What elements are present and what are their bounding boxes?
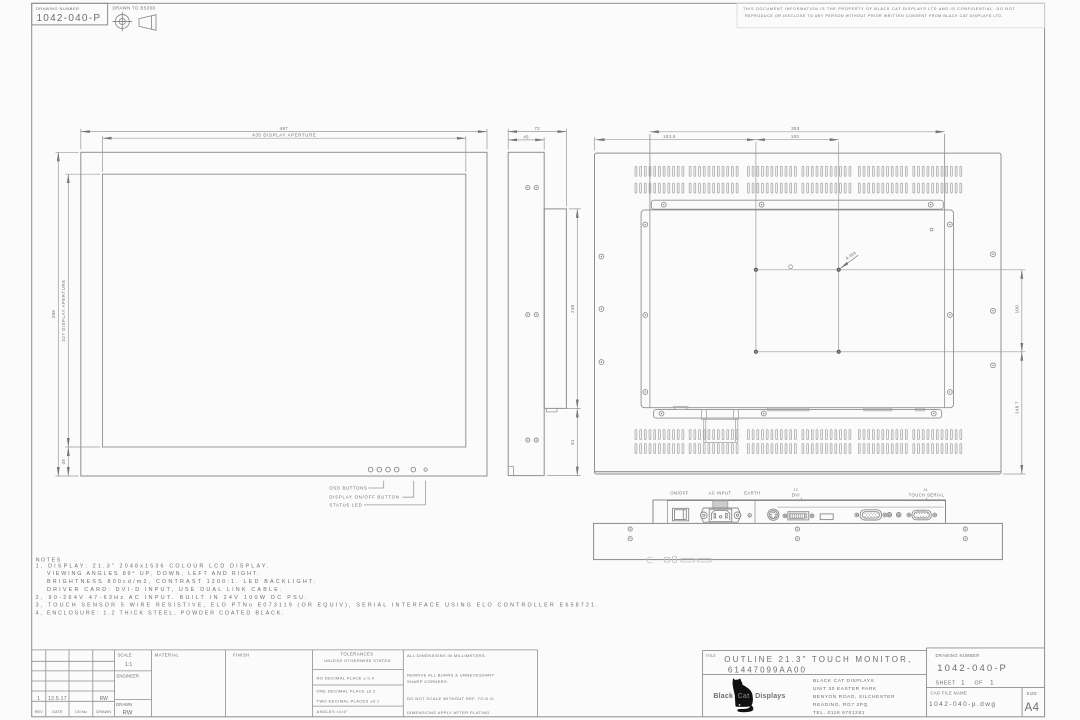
- svg-text:72: 72: [535, 126, 541, 131]
- svg-text:BRIGHTNESS 800cd/m2, CONTRAST: BRIGHTNESS 800cd/m2, CONTRAST 1200:1. LE…: [47, 579, 315, 585]
- svg-text:ENGINEER: ENGINEER: [117, 673, 139, 678]
- svg-text:SCALE: SCALE: [118, 652, 132, 657]
- svg-text:SIZE: SIZE: [1027, 691, 1038, 696]
- svg-text:DVI: DVI: [792, 493, 800, 498]
- svg-text:1: 1: [37, 696, 40, 702]
- svg-text:REMOVE ALL BURRS & UNNECESSARY: REMOVE ALL BURRS & UNNECESSARY: [407, 672, 495, 677]
- svg-text:DRAWN TO BS308: DRAWN TO BS308: [113, 6, 156, 11]
- svg-text:100: 100: [1015, 305, 1020, 314]
- svg-text:1042-040-p.dwg: 1042-040-p.dwg: [929, 701, 995, 708]
- svg-text:BENYON ROAD, SILCHESTER: BENYON ROAD, SILCHESTER: [813, 694, 895, 700]
- svg-text:388: 388: [51, 310, 56, 319]
- svg-text:UNIT 30 EASTER PARK: UNIT 30 EASTER PARK: [813, 686, 877, 692]
- svg-text:353: 353: [791, 126, 800, 131]
- svg-text:RW: RW: [100, 696, 109, 702]
- svg-text:DISPLAY ON/OFF BUTTON: DISPLAY ON/OFF BUTTON: [329, 495, 399, 500]
- svg-text:1: 1: [961, 680, 965, 687]
- svg-text:487: 487: [280, 126, 289, 131]
- svg-text:100: 100: [791, 134, 800, 139]
- svg-text:CN No: CN No: [75, 709, 87, 714]
- svg-text:ALL DIMENSIONS IN MILLIMETERS.: ALL DIMENSIONS IN MILLIMETERS.: [407, 653, 486, 658]
- svg-text:RW: RW: [123, 711, 133, 717]
- svg-text:SHEET: SHEET: [936, 680, 957, 686]
- svg-text:REV: REV: [35, 709, 43, 714]
- svg-text:OF: OF: [975, 680, 983, 686]
- svg-text:12.5.17: 12.5.17: [48, 696, 67, 702]
- svg-text:327 DISPLAY APERTURE: 327 DISPLAY APERTURE: [61, 280, 66, 342]
- svg-text:TITLE: TITLE: [706, 654, 717, 658]
- svg-text:248: 248: [570, 304, 575, 313]
- svg-text:UNLESS OTHERWISE STATED: UNLESS OTHERWISE STATED: [324, 658, 391, 663]
- svg-text:1: 1: [990, 680, 994, 687]
- svg-text:1042-040-P: 1042-040-P: [937, 663, 1006, 674]
- svg-text:REPRODUCE OR DISCLOSE TO ANY P: REPRODUCE OR DISCLOSE TO ANY PERSON WITH…: [745, 14, 1003, 18]
- svg-text:READING, RG7 2PQ: READING, RG7 2PQ: [813, 702, 868, 708]
- svg-text:45: 45: [523, 134, 529, 139]
- svg-text:THIS DOCUMENT INFORMATION IS T: THIS DOCUMENT INFORMATION IS THE PROPERT…: [743, 7, 1015, 11]
- svg-text:TWO DECIMAL PLACES ±0.1: TWO DECIMAL PLACES ±0.1: [317, 698, 380, 703]
- svg-text:Cat: Cat: [738, 693, 750, 700]
- svg-text:DRAWN: DRAWN: [96, 709, 111, 714]
- svg-text:ONE DECIMAL PLACE ±0.2: ONE DECIMAL PLACE ±0.2: [317, 688, 377, 693]
- svg-text:AC INPUT: AC INPUT: [709, 490, 732, 495]
- svg-text:DIMENSIONS APPLY AFTER PLATING: DIMENSIONS APPLY AFTER PLATING.: [407, 710, 491, 715]
- svg-text:ANGLES ±1/4°: ANGLES ±1/4°: [317, 709, 349, 714]
- svg-text:148.7: 148.7: [1015, 401, 1020, 414]
- svg-text:1:1: 1:1: [125, 662, 132, 668]
- svg-text:1, DISPLAY: 21.3" 2048x1536 CO: 1, DISPLAY: 21.3" 2048x1536 COLOUR LCD D…: [36, 563, 269, 569]
- svg-text:3, TOUCH SENSOR 5 WIRE RESISTI: 3, TOUCH SENSOR 5 WIRE RESISTIVE, ELO PT…: [36, 603, 598, 609]
- svg-text:81: 81: [570, 439, 575, 445]
- svg-text:TOUCH SERIAL: TOUCH SERIAL: [909, 493, 945, 498]
- svg-text:OSD BUTTONS: OSD BUTTONS: [329, 485, 366, 490]
- svg-text:STATUS LED: STATUS LED: [329, 502, 361, 507]
- svg-text:4, ENCLOSURE: 1.2 THICK STEEL,: 4, ENCLOSURE: 1.2 THICK STEEL, POWDER CO…: [36, 611, 284, 617]
- svg-text:NO DECIMAL PLACE ± 0.4: NO DECIMAL PLACE ± 0.4: [317, 675, 375, 680]
- svg-text:TOLERANCES: TOLERANCES: [340, 652, 373, 657]
- svg-text:A4: A4: [1025, 702, 1040, 714]
- svg-text:ON/OFF: ON/OFF: [670, 490, 688, 495]
- svg-text:BLACK CAT DISPLAYS: BLACK CAT DISPLAYS: [813, 678, 874, 684]
- svg-text:EARTH: EARTH: [744, 490, 760, 495]
- svg-text:FINISH: FINISH: [233, 652, 250, 657]
- svg-text:DO NOT SCALE WITHOUT REF. TO D: DO NOT SCALE WITHOUT REF. TO D.O.: [407, 696, 495, 701]
- svg-text:Black: Black: [713, 693, 733, 700]
- svg-text:DRAWING NUMBER: DRAWING NUMBER: [36, 6, 79, 11]
- svg-text:TEL. 0118 9701281: TEL. 0118 9701281: [813, 710, 865, 716]
- svg-text:J2: J2: [794, 488, 799, 492]
- svg-text:435 DISPLAY APERTURE: 435 DISPLAY APERTURE: [252, 133, 316, 138]
- svg-text:1042-040-P: 1042-040-P: [37, 13, 101, 24]
- svg-text:193.5: 193.5: [663, 134, 676, 139]
- svg-text:Displays: Displays: [755, 693, 785, 700]
- svg-text:DRAWN: DRAWN: [116, 702, 132, 707]
- svg-text:J4: J4: [923, 488, 928, 492]
- svg-text:SHARP CORNERS.: SHARP CORNERS.: [407, 679, 449, 684]
- svg-text:35: 35: [61, 459, 66, 465]
- svg-text:MATERIAL: MATERIAL: [155, 652, 180, 657]
- svg-text:DRAWING NUMBER: DRAWING NUMBER: [936, 653, 980, 658]
- svg-text:DATE: DATE: [52, 709, 62, 714]
- svg-text:CAD FILE NAME: CAD FILE NAME: [931, 691, 968, 696]
